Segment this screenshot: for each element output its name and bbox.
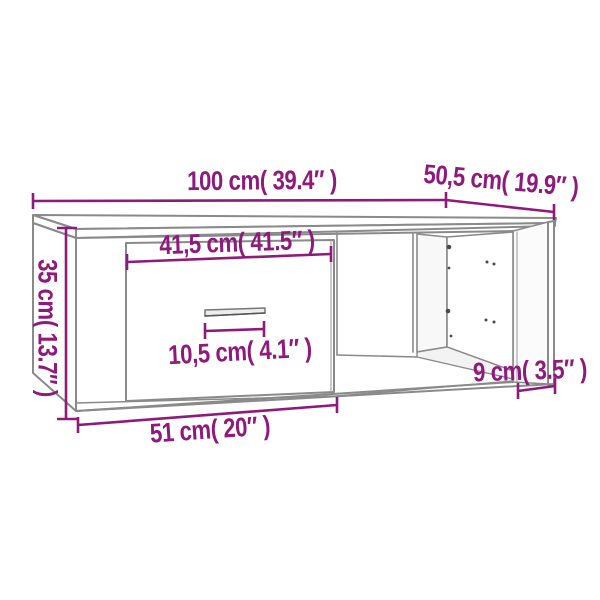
drawer-front	[126, 240, 334, 401]
furniture-line-drawing	[0, 0, 600, 600]
furniture-dimension-diagram: 100 cm( 39.4″ ) 50,5 cm( 19.9″ ) 35 cm( …	[0, 0, 600, 600]
dim-label-right-depth: 9 cm( 3.5″ )	[473, 354, 588, 389]
dim-label-drawer-width: 41,5 cm( 41.5″ )	[159, 225, 315, 261]
dim-label-width-top: 100 cm( 39.4″ )	[187, 165, 337, 197]
dim-label-height-left: 35 cm( 13.7″ )	[32, 259, 63, 397]
compartment-divider-face	[417, 234, 447, 352]
